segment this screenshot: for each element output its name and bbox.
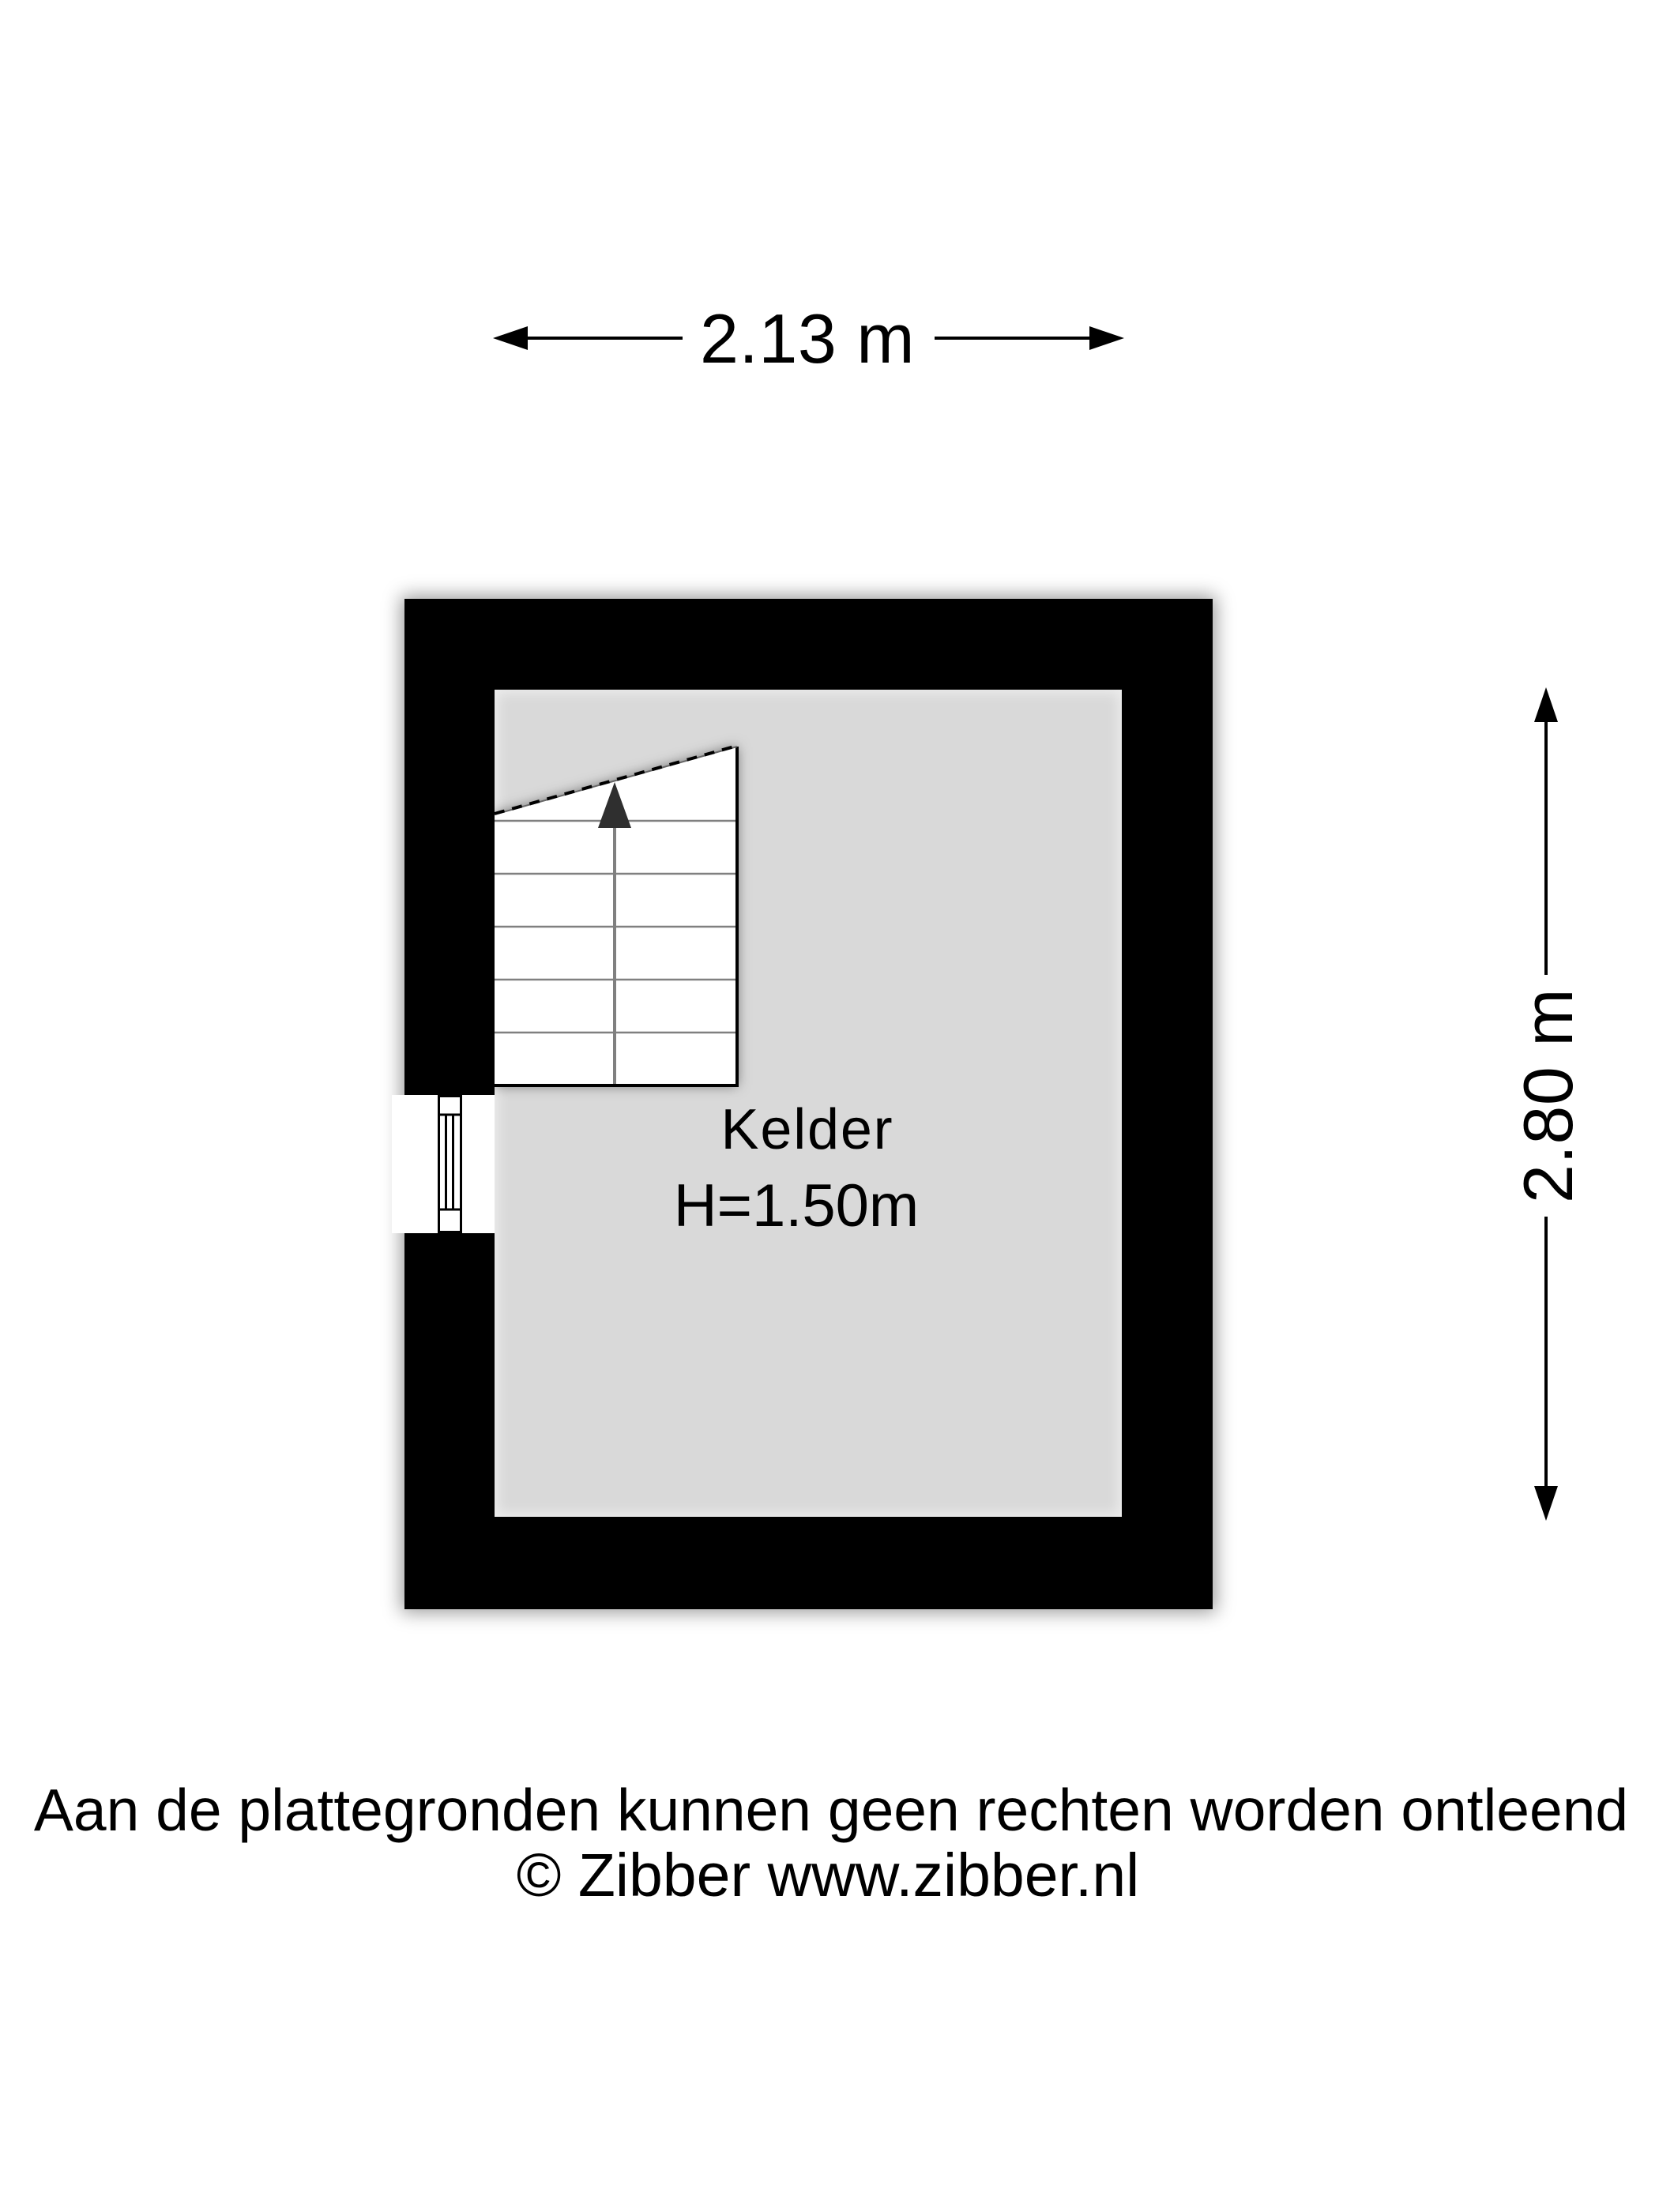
svg-text:H=1.50m: H=1.50m <box>674 1172 920 1240</box>
svg-text:Kelder: Kelder <box>721 1098 894 1161</box>
svg-text:2.80 m: 2.80 m <box>1509 988 1587 1203</box>
svg-text:2.13 m: 2.13 m <box>700 299 915 378</box>
svg-text:Aan de plattegronden kunnen ge: Aan de plattegronden kunnen geen rechten… <box>34 1777 1628 1843</box>
svg-text:© Zibber www.zibber.nl: © Zibber www.zibber.nl <box>517 1841 1140 1909</box>
